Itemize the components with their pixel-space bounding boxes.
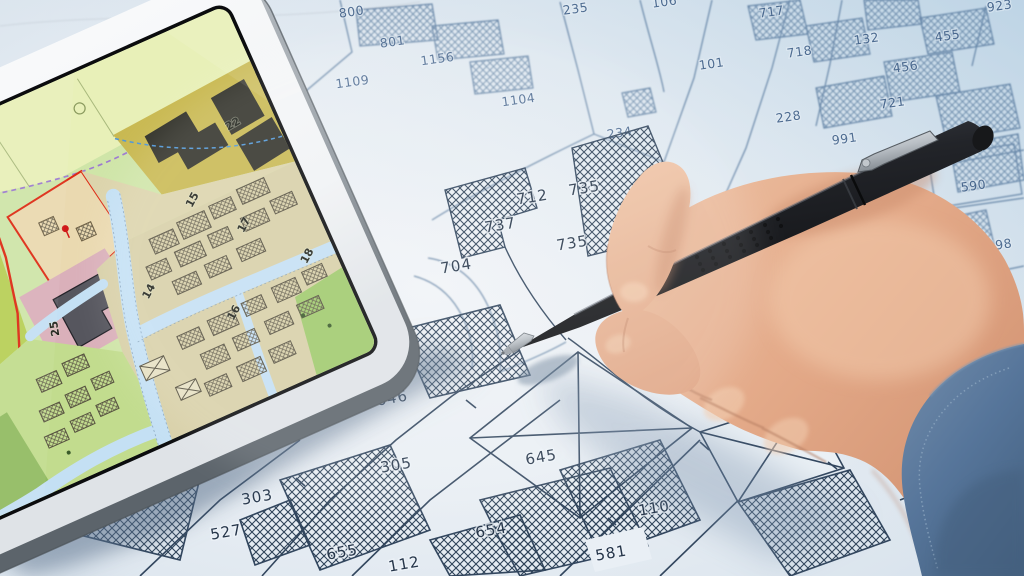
light-glare <box>100 30 760 510</box>
photo-scene: 8008011156110911042351061012347177181329… <box>0 0 1024 576</box>
cadastral-scene-svg: 8008011156110911042351061012347177181329… <box>0 0 1024 576</box>
